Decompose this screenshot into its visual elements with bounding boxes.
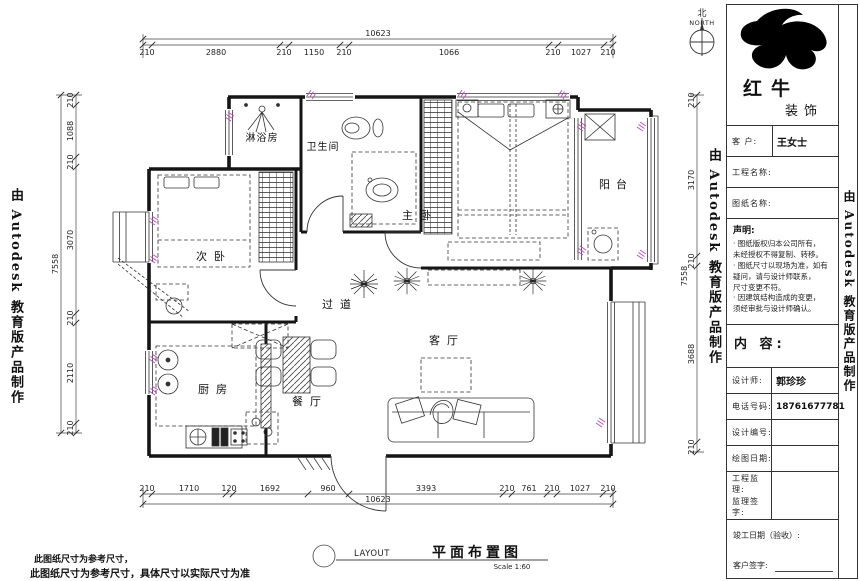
- drawing-name-label: 图纸名称:: [727, 198, 772, 209]
- statement-cell: 声明: · 图纸版权归本公司所有， 未经授权不得复制、转移。 · 图纸尺寸以现场…: [727, 219, 838, 325]
- svg-text:960: 960: [320, 484, 335, 493]
- floor-plan-drawing: 淋浴房 卫生间 主卧 阳台 次卧 过道 客厅 厨房 餐厅: [0, 0, 726, 581]
- project-name-row: 工程名称:: [727, 157, 838, 188]
- svg-text:210: 210: [687, 253, 696, 268]
- svg-text:210: 210: [687, 439, 696, 454]
- statement-line: · 图纸尺寸以现场为准，如有: [733, 261, 835, 272]
- svg-text:2880: 2880: [206, 48, 226, 57]
- room-label-living: 客厅: [429, 333, 465, 347]
- svg-text:7558: 7558: [51, 254, 60, 274]
- supervisor-label: 工程监理:: [727, 473, 771, 495]
- svg-text:210: 210: [66, 420, 75, 435]
- room-label-shower: 淋浴房: [246, 131, 279, 144]
- north-compass-icon: 北 NORTH: [689, 8, 714, 56]
- statement-line: 尺寸变更不符。: [733, 283, 835, 294]
- svg-text:3393: 3393: [416, 484, 436, 493]
- completion-label: 竣工日期（验收）:: [733, 530, 800, 541]
- designer-value: 郭珍珍: [772, 373, 806, 388]
- client-value: 王女士: [773, 134, 807, 149]
- note-line-1: 此图纸尺寸为参考尺寸，: [34, 552, 133, 565]
- svg-text:761: 761: [521, 484, 536, 493]
- svg-text:210: 210: [276, 48, 291, 57]
- room-label-kitchen: 厨房: [198, 383, 234, 396]
- statement-title: 声明:: [733, 223, 835, 236]
- signoff-cell: 竣工日期（验收）: 客户签字:: [727, 520, 838, 581]
- bull-logo-icon: 红牛 装饰: [727, 5, 837, 123]
- dining-furniture: [246, 337, 336, 444]
- svg-text:210: 210: [66, 154, 75, 169]
- supervisor-row: 工程监理: 监理签字:: [727, 472, 838, 520]
- phone-row: 电话号码: 18761677781: [727, 394, 838, 420]
- note-line-2: 此图纸尺寸为参考尺寸，具体尺寸以实际尺寸为准: [30, 565, 250, 580]
- draw-date-label: 绘图日期:: [727, 453, 772, 464]
- phone-label: 电话号码:: [727, 401, 772, 412]
- company-name: 红牛: [743, 77, 799, 100]
- shower-fixture: [245, 104, 280, 133]
- content-cell: 内 容:: [727, 325, 838, 368]
- svg-text:210: 210: [499, 484, 514, 493]
- svg-text:2110: 2110: [66, 363, 75, 383]
- svg-text:120: 120: [221, 484, 236, 493]
- svg-text:10623: 10623: [365, 495, 390, 504]
- statement-line: · 因建筑结构造成的变更，: [733, 293, 835, 304]
- design-no-label: 设计编号:: [727, 427, 772, 438]
- svg-text:210: 210: [139, 48, 154, 57]
- company-logo-cell: 红牛 装饰: [727, 5, 838, 126]
- svg-text:1692: 1692: [260, 484, 280, 493]
- company-name-suffix: 装饰: [785, 104, 823, 119]
- svg-text:1027: 1027: [570, 484, 590, 493]
- svg-text:210: 210: [545, 48, 560, 57]
- kitchen-fixtures: [156, 346, 256, 448]
- svg-text:1088: 1088: [66, 121, 75, 141]
- svg-text:1027: 1027: [571, 48, 591, 57]
- client-label: 客 户:: [727, 136, 772, 147]
- living-room-furniture: [350, 268, 546, 442]
- dimension-ticks: [58, 36, 700, 507]
- room-label-balcony: 阳台: [599, 177, 633, 191]
- svg-text:1710: 1710: [179, 484, 199, 493]
- compass-north-cn: 北: [697, 8, 706, 19]
- svg-text:210: 210: [66, 92, 75, 107]
- svg-text:3170: 3170: [687, 170, 696, 190]
- caption-tag: LAYOUT: [354, 549, 390, 559]
- room-label-dining: 餐厅: [292, 394, 328, 408]
- content-label: 内 容:: [734, 333, 786, 352]
- svg-text:210: 210: [687, 92, 696, 107]
- designer-label: 设计师:: [727, 375, 763, 386]
- draw-date-row: 绘图日期:: [727, 446, 838, 472]
- statement-line: · 图纸版权归本公司所有，: [733, 239, 835, 250]
- caption-title: 平面布置图: [432, 544, 522, 561]
- drawing-name-row: 图纸名称:: [727, 188, 838, 219]
- design-no-row: 设计编号:: [727, 420, 838, 446]
- svg-text:210: 210: [600, 48, 615, 57]
- svg-text:10623: 10623: [365, 29, 390, 38]
- master-bedroom-furniture: [424, 100, 570, 260]
- autodesk-watermark-right: 由 Autodesk 教育版产品制作: [841, 190, 858, 393]
- svg-text:210: 210: [66, 310, 75, 325]
- supervisor-sign-label: 监理签字:: [727, 496, 771, 518]
- interior-walls: [149, 97, 611, 456]
- client-signature-line: [775, 571, 833, 572]
- svg-text:1150: 1150: [304, 48, 324, 57]
- svg-text:210: 210: [139, 484, 154, 493]
- caption-scale: Scale 1:60: [494, 563, 531, 571]
- drawing-caption: LAYOUT 平面布置图 Scale 1:60: [313, 544, 548, 571]
- svg-text:210: 210: [544, 484, 559, 493]
- statement-line: 未经授权不得复制、转移。: [733, 250, 835, 261]
- room-label-second: 次卧: [196, 249, 232, 263]
- room-label-master: 主卧: [402, 209, 438, 222]
- title-block: 红牛 装饰 客 户: 王女士 工程名称: 图纸名称: 声明: · 图纸版权归本公…: [726, 4, 858, 579]
- autodesk-watermark-middle: 由 Autodesk 教育版产品制作: [704, 148, 723, 418]
- svg-text:210: 210: [336, 48, 351, 57]
- floor-plan-sheet: 淋浴房 卫生间 主卧 阳台 次卧 过道 客厅 厨房 餐厅: [0, 0, 860, 581]
- statement-line: 疑问，请与设计师联系，: [733, 272, 835, 283]
- room-label-bathroom: 卫生间: [307, 140, 340, 153]
- client-row: 客 户: 王女士: [727, 126, 838, 157]
- autodesk-watermark-left: 由 Autodesk 教育版产品制作: [6, 188, 25, 448]
- svg-text:3688: 3688: [687, 344, 696, 364]
- svg-text:3070: 3070: [66, 230, 75, 250]
- phone-value: 18761677781: [772, 402, 845, 412]
- statement-line: 须经审批与设计师确认。: [733, 304, 835, 315]
- designer-row: 设计师: 郭珍珍: [727, 368, 838, 394]
- title-block-watermark-strip: 由 Autodesk 教育版产品制作: [839, 5, 857, 578]
- room-label-hallway: 过道: [322, 297, 358, 311]
- client-sign-label: 客户签字:: [733, 560, 768, 571]
- project-name-label: 工程名称:: [727, 167, 772, 178]
- svg-text:210: 210: [600, 484, 615, 493]
- svg-text:1066: 1066: [439, 48, 459, 57]
